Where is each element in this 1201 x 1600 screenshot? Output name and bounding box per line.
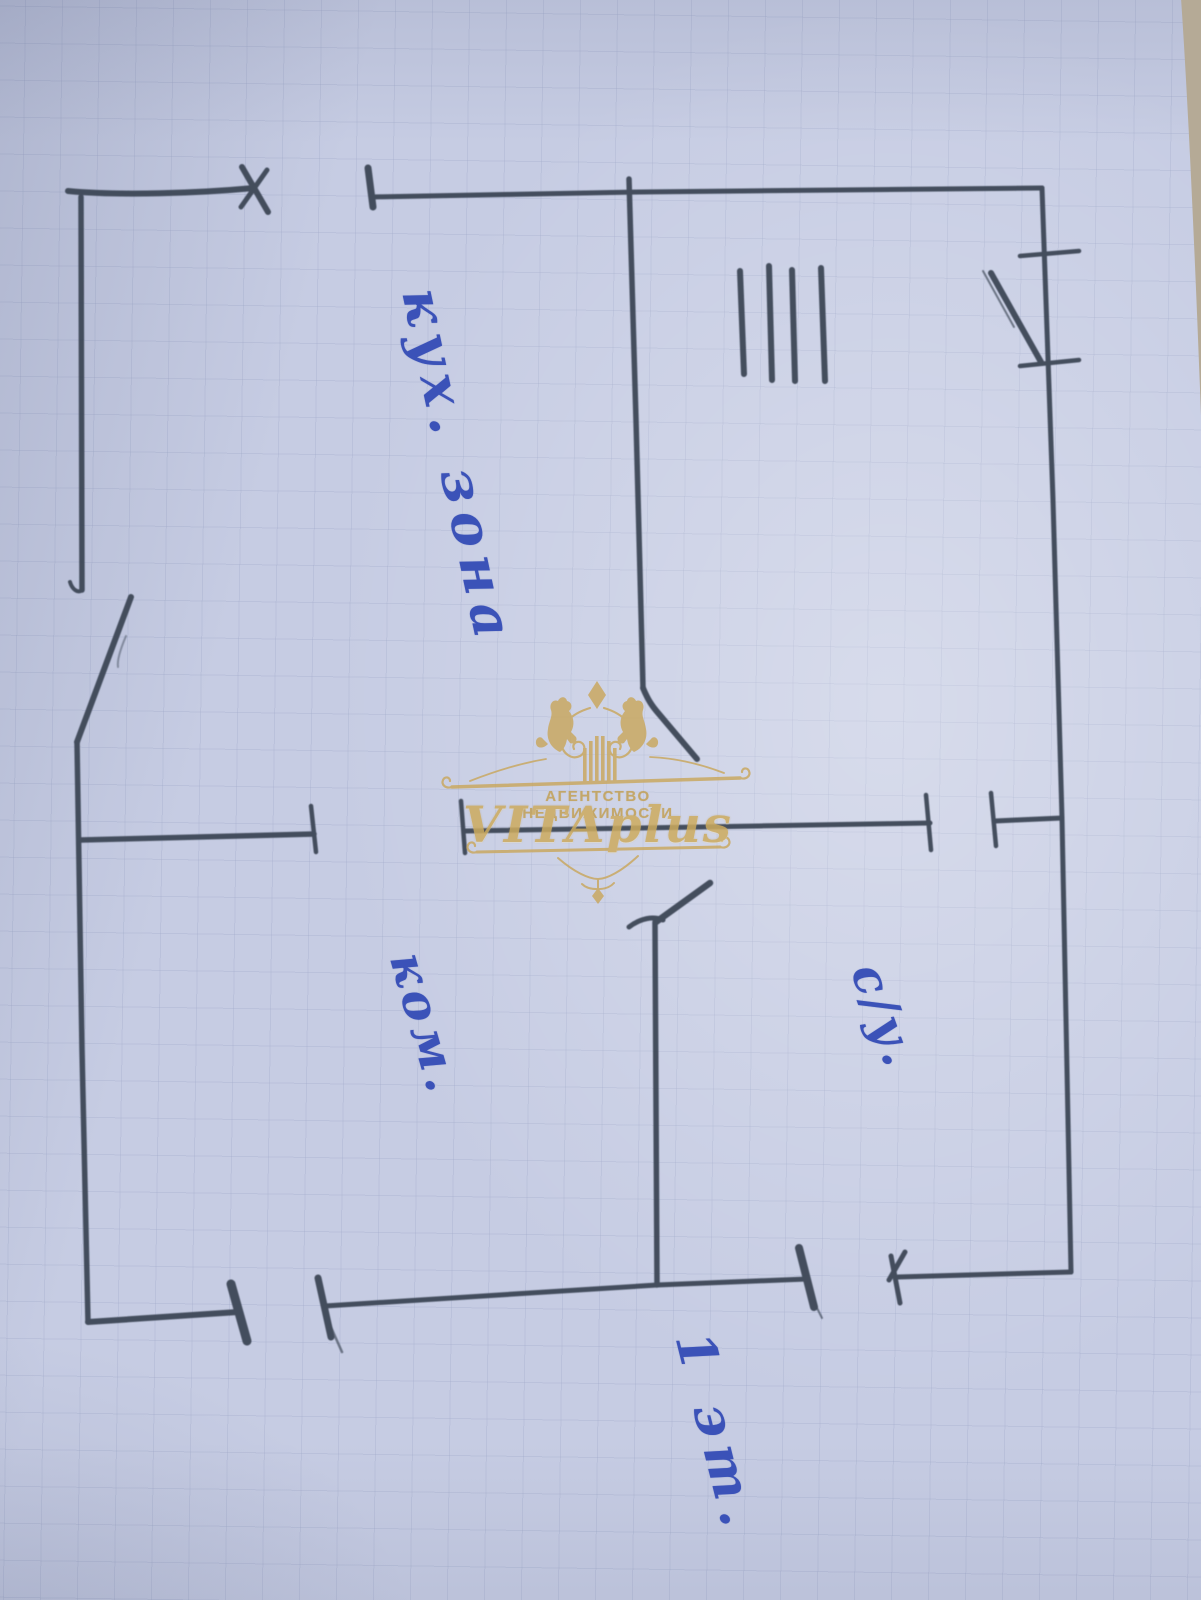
opening-ticks [231, 167, 996, 1352]
hatch-line [769, 266, 772, 380]
floor-plan-photo: АГЕНТСТВО НЕДВИЖИМОСТИ VITAplus кух. зон… [0, 0, 1201, 1600]
wall-tick [311, 806, 316, 852]
wall-interior-horizontal-main [465, 823, 930, 831]
door-leaf-left [77, 597, 131, 742]
door-leaf-room [656, 883, 710, 922]
wall-right [1042, 188, 1071, 1272]
right-wall-door [983, 251, 1079, 366]
wall-tick [926, 795, 931, 850]
window-hatch [740, 266, 825, 381]
door-leaf-right-echo [983, 271, 1014, 327]
wall-interior-horizontal-right [995, 818, 1062, 821]
door-leaf-right [991, 273, 1041, 362]
door-swing-arc [118, 636, 126, 667]
interior-walls [81, 179, 1062, 1285]
wall-interior-vertical-top [629, 179, 643, 688]
wall-bottom-right [898, 1272, 1071, 1277]
table-background-corner [1181, 0, 1201, 470]
door-leaf-kitchen [643, 688, 697, 759]
wall-bottom-main [325, 1279, 807, 1306]
wall-tick [991, 793, 996, 846]
wall-bottom-left [88, 1312, 238, 1322]
outer-walls [68, 188, 1071, 1322]
wall-tick [1020, 251, 1079, 256]
wall-left-lower [77, 742, 88, 1322]
hatch-line [792, 270, 795, 381]
wall-top-left [68, 188, 254, 194]
hatch-line [740, 271, 744, 374]
wall-tick [368, 168, 373, 207]
wall-tick [461, 801, 465, 853]
wall-tick [1020, 360, 1079, 366]
wall-left-upper [81, 197, 82, 590]
wall-top-main [371, 188, 1042, 197]
wall-interior-horizontal-left [81, 834, 314, 840]
wall-interior-vertical-bottom [655, 922, 657, 1285]
hatch-line [821, 268, 825, 381]
floor-plan-drawing [0, 0, 1201, 1600]
left-wall-door [77, 597, 131, 742]
